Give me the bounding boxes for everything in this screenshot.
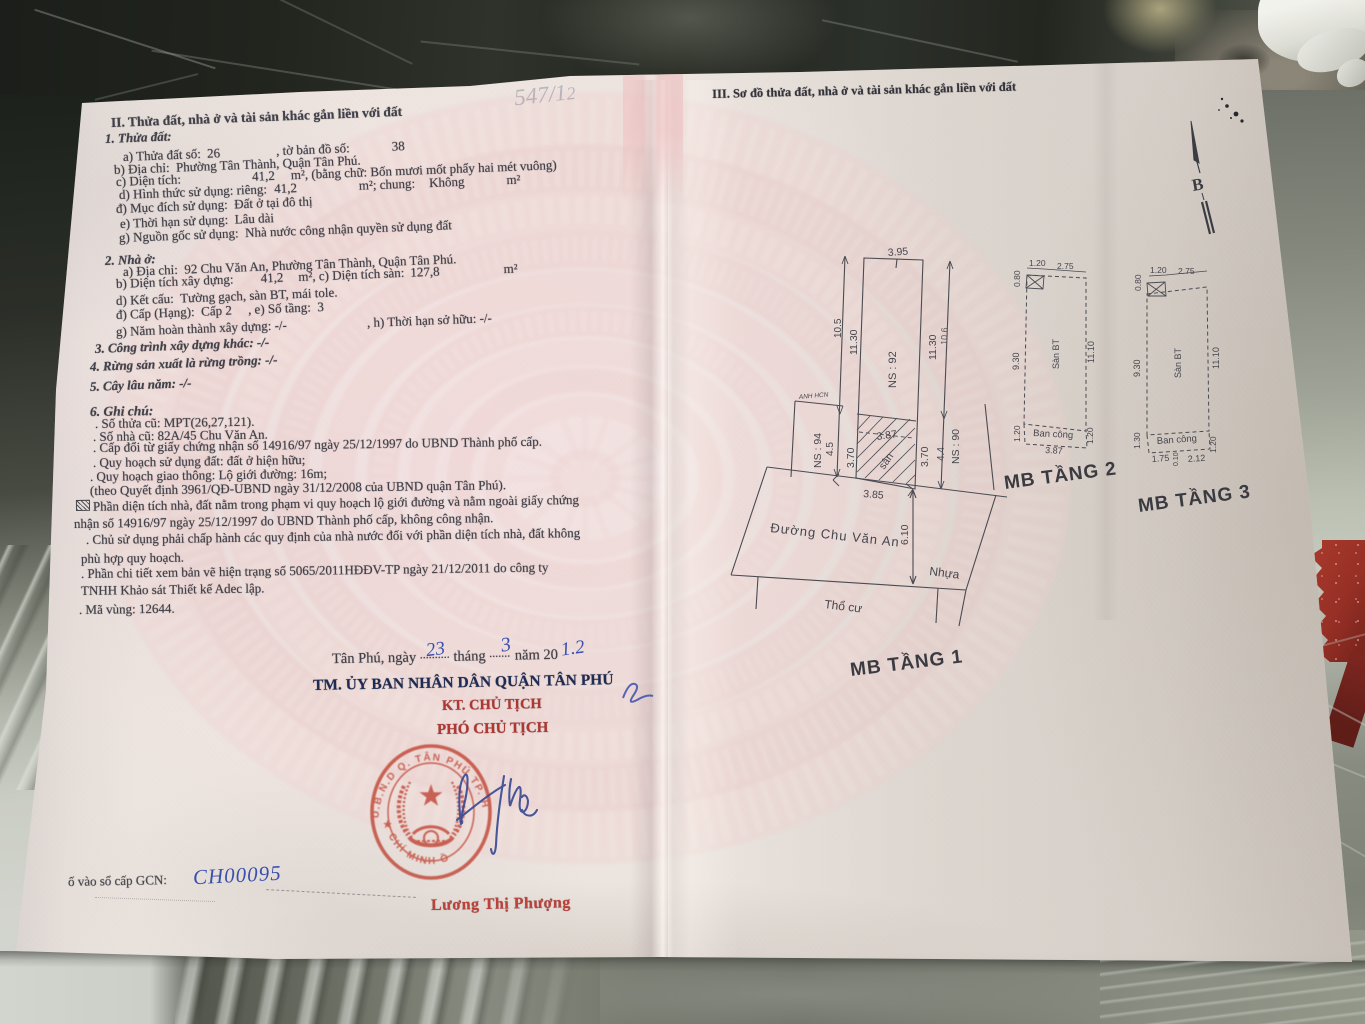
svg-text:10.5: 10.5	[833, 318, 844, 338]
svg-text:B: B	[1190, 174, 1204, 195]
svg-text:MB TẦNG 1: MB TẦNG 1	[849, 645, 964, 681]
svg-text:NS : 90: NS : 90	[950, 429, 962, 464]
svg-text:Nhựa: Nhựa	[929, 564, 961, 582]
svg-text:2.75: 2.75	[1057, 261, 1074, 271]
svg-text:NS : 92: NS : 92	[887, 351, 899, 388]
svg-text:ANH HCN: ANH HCN	[798, 391, 829, 401]
svg-text:1.20: 1.20	[1029, 258, 1046, 268]
svg-text:1.20: 1.20	[1085, 427, 1095, 444]
svg-text:Ban công: Ban công	[1033, 428, 1074, 441]
svg-text:Ban công: Ban công	[1156, 433, 1197, 447]
svg-text:4.5: 4.5	[825, 442, 836, 456]
svg-text:0.80: 0.80	[1012, 270, 1022, 287]
svg-text:11.30: 11.30	[848, 329, 860, 355]
svg-text:9.30: 9.30	[1132, 359, 1142, 377]
svg-text:3.70: 3.70	[845, 447, 857, 468]
svg-text:6.10: 6.10	[899, 524, 911, 545]
svg-text:Đường Chu Văn An: Đường Chu Văn An	[770, 520, 901, 550]
svg-text:NS : 94: NS : 94	[812, 433, 824, 468]
svg-text:0.10: 0.10	[1173, 452, 1180, 466]
svg-text:1.30: 1.30	[1132, 432, 1142, 449]
svg-text:4.4: 4.4	[936, 447, 947, 461]
svg-text:11.30: 11.30	[927, 334, 939, 360]
svg-text:1.20: 1.20	[1012, 425, 1022, 442]
svg-text:Sàn BT: Sàn BT	[1173, 347, 1183, 378]
svg-text:Sàn BT: Sàn BT	[1051, 338, 1061, 369]
svg-text:3.85: 3.85	[863, 488, 885, 502]
svg-text:10.6: 10.6	[939, 327, 950, 345]
svg-text:2.75: 2.75	[1178, 266, 1195, 276]
svg-text:Thổ cư: Thổ cư	[824, 597, 863, 616]
svg-text:3.87: 3.87	[1045, 445, 1063, 456]
svg-text:3.70: 3.70	[919, 446, 931, 467]
svg-text:MB TẦNG 3: MB TẦNG 3	[1137, 480, 1252, 517]
svg-text:1.20: 1.20	[1208, 436, 1218, 453]
svg-text:9.30: 9.30	[1011, 352, 1021, 370]
svg-text:11.10: 11.10	[1086, 341, 1096, 363]
svg-text:11.10: 11.10	[1211, 347, 1221, 369]
svg-text:MB TẦNG 2: MB TẦNG 2	[1003, 457, 1118, 494]
svg-text:sân: sân	[877, 451, 897, 472]
svg-text:1.20: 1.20	[1150, 265, 1167, 275]
svg-text:3.87: 3.87	[876, 428, 898, 443]
svg-text:0.80: 0.80	[1133, 274, 1143, 291]
svg-text:2.12: 2.12	[1187, 453, 1205, 464]
svg-text:3.95: 3.95	[887, 246, 908, 259]
svg-text:1.75: 1.75	[1151, 453, 1169, 464]
